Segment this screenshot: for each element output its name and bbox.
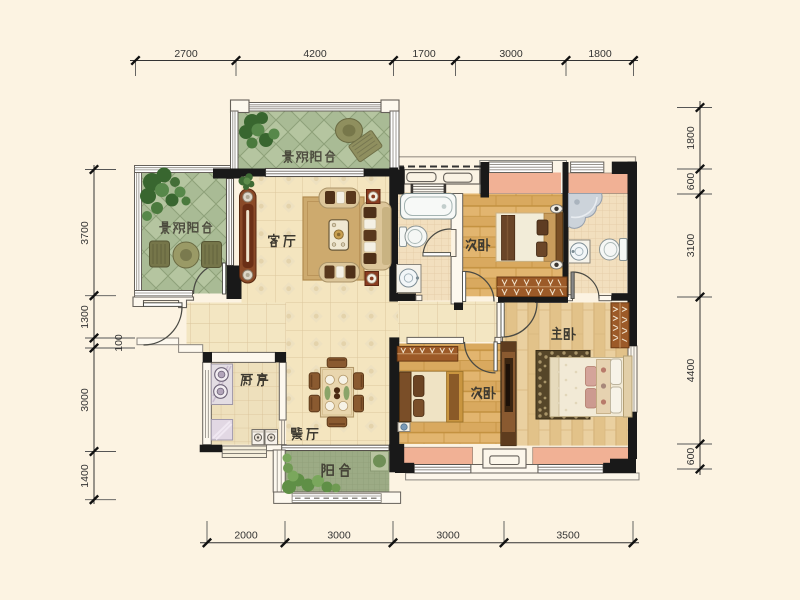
svg-text:1800: 1800 xyxy=(685,126,697,150)
svg-text:2000: 2000 xyxy=(234,530,258,542)
svg-text:3100: 3100 xyxy=(685,234,697,258)
svg-text:100: 100 xyxy=(113,334,125,352)
svg-text:1700: 1700 xyxy=(412,48,436,60)
svg-text:3700: 3700 xyxy=(79,221,91,245)
svg-text:4400: 4400 xyxy=(685,359,697,383)
svg-text:600: 600 xyxy=(685,173,697,191)
svg-text:1400: 1400 xyxy=(79,464,91,488)
svg-text:4200: 4200 xyxy=(303,48,327,60)
svg-text:3000: 3000 xyxy=(436,530,460,542)
svg-text:600: 600 xyxy=(685,448,697,466)
svg-text:3000: 3000 xyxy=(499,48,523,60)
svg-text:3500: 3500 xyxy=(556,530,580,542)
svg-text:2700: 2700 xyxy=(174,48,198,60)
svg-text:1800: 1800 xyxy=(588,48,612,60)
svg-text:1300: 1300 xyxy=(79,305,91,329)
svg-text:3000: 3000 xyxy=(79,388,91,412)
svg-text:3000: 3000 xyxy=(327,530,351,542)
